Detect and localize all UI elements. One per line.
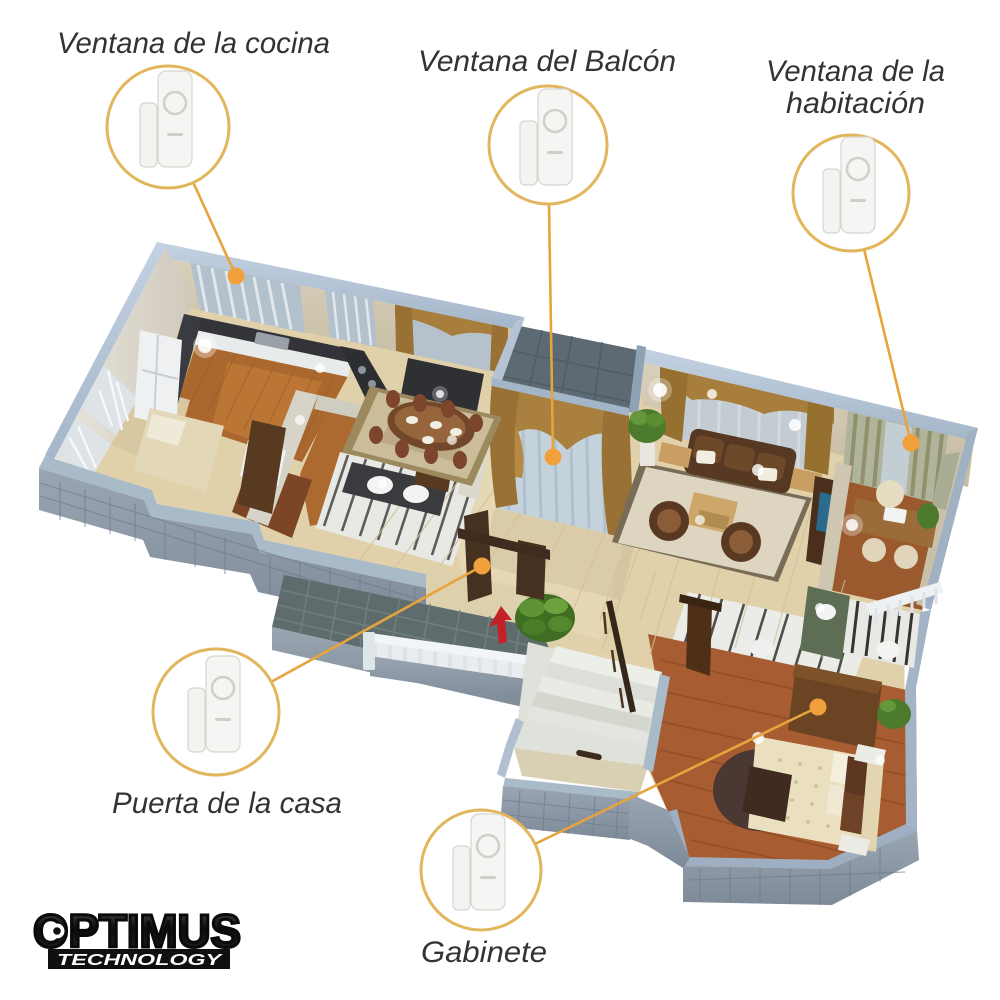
svg-text:Puerta de la casa: Puerta de la casa bbox=[112, 787, 342, 820]
svg-text:Ventana del Balcón: Ventana del Balcón bbox=[418, 45, 676, 78]
svg-text:habitación: habitación bbox=[786, 87, 925, 120]
svg-text:Ventana de la: Ventana de la bbox=[766, 55, 945, 88]
svg-text:Gabinete: Gabinete bbox=[421, 936, 547, 969]
svg-text:TECHNOLOGY: TECHNOLOGY bbox=[57, 952, 223, 969]
svg-text:Ventana de la cocina: Ventana de la cocina bbox=[57, 27, 330, 60]
